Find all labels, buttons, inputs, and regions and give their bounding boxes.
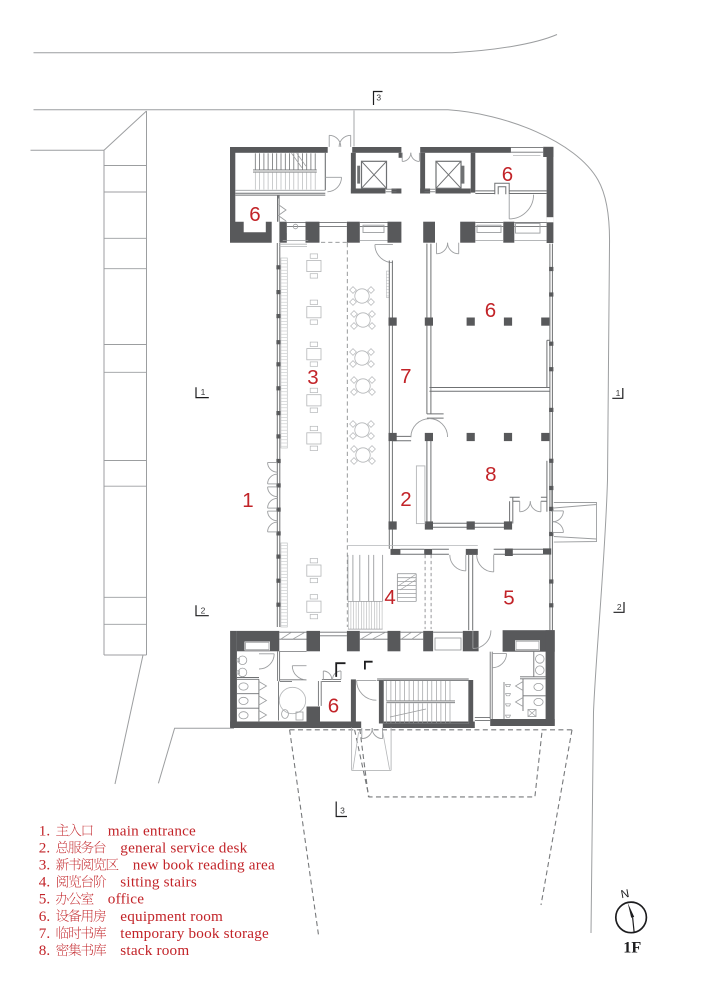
svg-text:4.: 4. <box>39 874 50 891</box>
svg-text:main entrance: main entrance <box>108 822 196 839</box>
svg-text:4: 4 <box>384 586 395 609</box>
svg-text:3: 3 <box>340 805 345 815</box>
svg-text:7: 7 <box>400 365 411 388</box>
svg-text:6: 6 <box>485 299 496 322</box>
svg-text:7.: 7. <box>39 925 50 942</box>
svg-text:6.: 6. <box>39 908 50 925</box>
svg-text:6: 6 <box>249 203 260 226</box>
svg-text:5.: 5. <box>39 891 50 908</box>
svg-text:6: 6 <box>328 695 339 718</box>
svg-text:2.: 2. <box>39 839 50 856</box>
svg-text:3: 3 <box>307 366 318 389</box>
svg-text:3.: 3. <box>39 857 50 874</box>
svg-text:2: 2 <box>201 605 206 615</box>
svg-text:equipment room: equipment room <box>120 908 223 925</box>
svg-text:6: 6 <box>502 163 513 186</box>
svg-text:2: 2 <box>617 602 622 612</box>
svg-text:general service desk: general service desk <box>120 839 247 856</box>
svg-text:1F: 1F <box>623 938 641 956</box>
svg-text:sitting stairs: sitting stairs <box>120 874 197 891</box>
svg-text:stack room: stack room <box>120 942 189 959</box>
svg-text:1.: 1. <box>39 822 50 839</box>
svg-text:new book reading area: new book reading area <box>133 857 275 874</box>
svg-text:temporary book storage: temporary book storage <box>120 925 269 942</box>
svg-text:3: 3 <box>376 92 381 102</box>
svg-text:1: 1 <box>616 388 621 398</box>
svg-text:2: 2 <box>400 488 411 511</box>
svg-text:5: 5 <box>503 587 514 610</box>
svg-text:office: office <box>108 891 144 908</box>
svg-text:1: 1 <box>242 489 253 512</box>
svg-text:8: 8 <box>485 463 496 486</box>
svg-text:1: 1 <box>201 387 206 397</box>
svg-text:8.: 8. <box>39 942 50 959</box>
